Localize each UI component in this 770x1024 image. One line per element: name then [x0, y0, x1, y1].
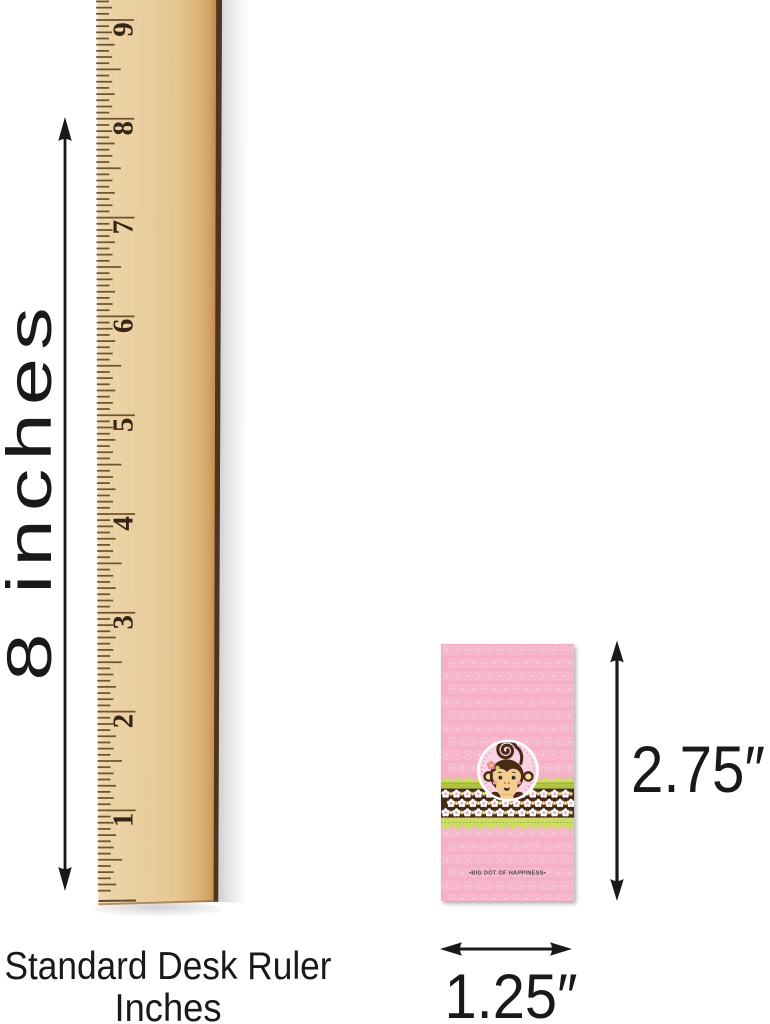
svg-text:Inches: Inches — [115, 987, 222, 1024]
svg-text:8: 8 — [108, 121, 140, 136]
svg-text:1: 1 — [108, 813, 140, 828]
svg-text:7: 7 — [108, 220, 140, 235]
svg-text:4: 4 — [108, 516, 140, 531]
svg-text:5: 5 — [108, 417, 140, 432]
svg-text:6: 6 — [108, 319, 140, 334]
svg-text:3: 3 — [108, 615, 140, 630]
svg-text:2: 2 — [108, 714, 140, 729]
svg-text:•BIG DOT OF HAPPINESS•: •BIG DOT OF HAPPINESS• — [469, 871, 546, 877]
svg-text:2.75″: 2.75″ — [631, 732, 765, 806]
svg-text:Standard Desk Ruler: Standard Desk Ruler — [5, 945, 332, 988]
svg-text:8 inches: 8 inches — [0, 299, 64, 681]
svg-text:9: 9 — [108, 22, 140, 37]
svg-text:1.25″: 1.25″ — [445, 962, 578, 1024]
